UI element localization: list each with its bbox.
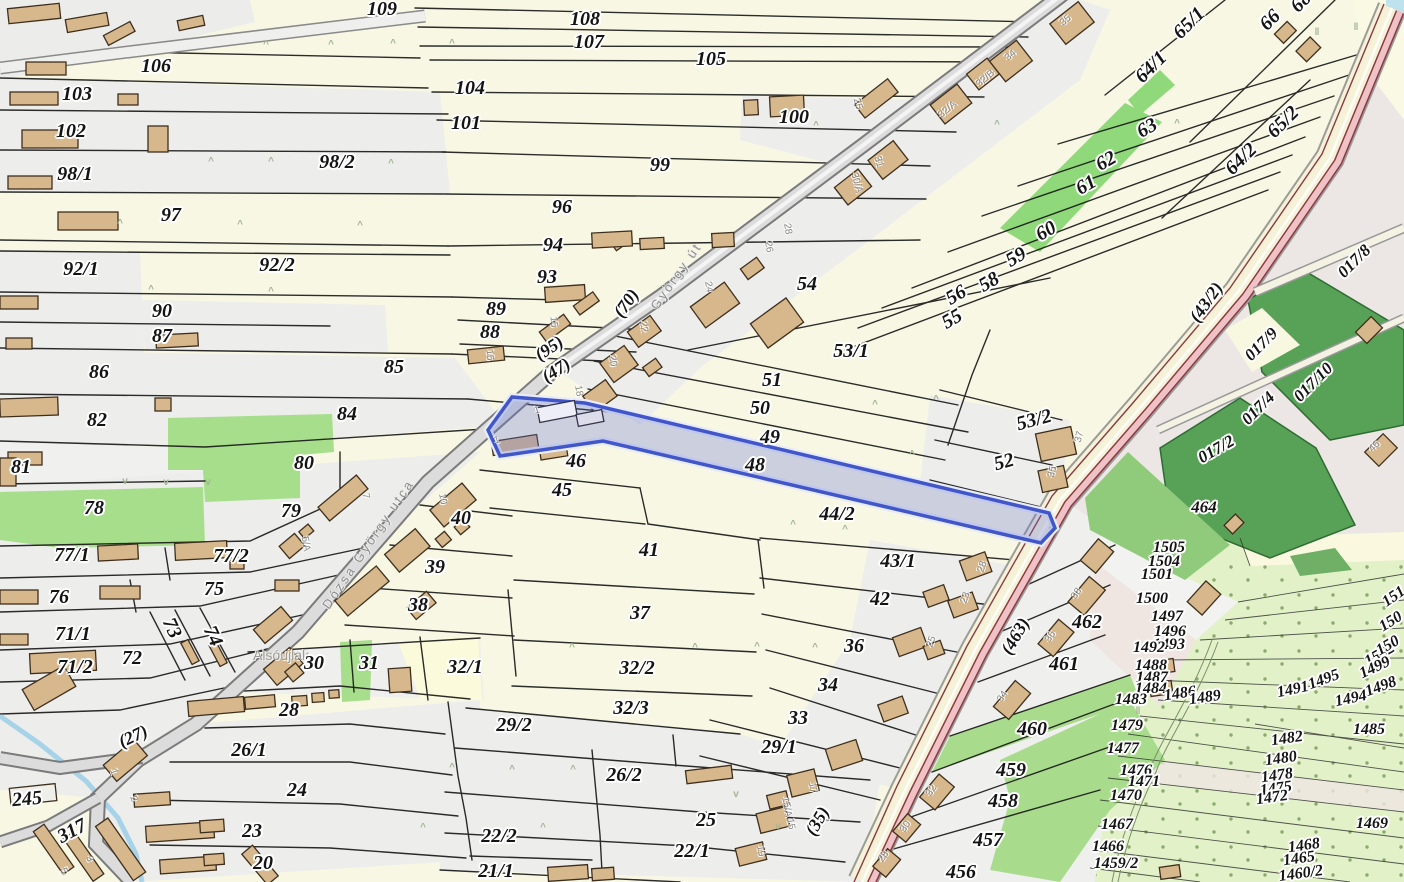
parcel-number-label: 1466 — [1092, 839, 1124, 855]
parcel-number-label: 80 — [294, 453, 314, 473]
parcel-number-label: 72 — [122, 648, 142, 668]
vegetation-symbol: ^ — [692, 643, 698, 653]
house-number-label: 19 — [754, 845, 766, 858]
parcel-number-label: 1501 — [1141, 567, 1173, 583]
parcel-number-label: 461 — [1049, 654, 1079, 674]
parcel-number-label: 103 — [62, 84, 92, 104]
parcel-number-label: 101 — [451, 113, 481, 133]
parcel-number-label: 46 — [566, 451, 586, 471]
vegetation-symbol: v — [163, 478, 169, 488]
map-geometry — [0, 0, 1404, 882]
house-number-label: 28 — [781, 223, 793, 236]
parcel-number-label: 106 — [141, 56, 171, 76]
parcel-number-label: 92/2 — [259, 255, 295, 275]
parcel-number-label: 51 — [762, 370, 782, 390]
parcel-number-label: 26/1 — [231, 740, 267, 760]
parcel-number-label: 31 — [359, 653, 379, 673]
parcel-number-label: 459 — [996, 760, 1026, 780]
parcel-number-label: 93 — [537, 267, 557, 287]
vegetation-symbol: ^ — [933, 395, 939, 405]
parcel-number-label: 245 — [11, 788, 43, 811]
vegetation-symbol: ^ — [420, 823, 426, 833]
parcel-number-label: 77/2 — [213, 546, 249, 566]
house-number-label: 15 — [784, 818, 796, 831]
vegetation-symbol: ^ — [390, 39, 396, 49]
parcel-number-label: 1467 — [1101, 817, 1133, 833]
parcel-number-label: 458 — [988, 791, 1018, 811]
parcel-number-label: 86 — [89, 362, 109, 382]
parcel-number-label: 1479 — [1111, 718, 1143, 734]
parcel-number-label: 464 — [1191, 499, 1217, 516]
parcel-number-label: 20 — [253, 853, 273, 873]
vegetation-symbol: v — [775, 822, 781, 832]
parcel-number-label: 460 — [1017, 719, 1047, 739]
parcel-number-label: 1492 — [1133, 640, 1165, 656]
parcel-number-label: 71/1 — [55, 624, 91, 644]
house-number-label: 20 — [606, 355, 618, 368]
parcel-number-label: 24 — [287, 780, 307, 800]
parcel-number-label: 40 — [451, 508, 471, 528]
vegetation-symbol: ^ — [909, 450, 915, 460]
parcel-number-label: 105 — [696, 49, 726, 69]
parcel-number-label: 50 — [750, 398, 770, 418]
vegetation-symbol: ^ — [263, 40, 269, 50]
parcel-number-label: 109 — [367, 0, 397, 19]
vegetation-symbol: v — [122, 477, 128, 487]
parcel-number-label: 32/2 — [619, 658, 655, 678]
parcel-number-label: 37 — [630, 603, 650, 623]
vegetation-symbol: ^ — [754, 642, 760, 652]
parcel-number-label: 90 — [152, 301, 172, 321]
vegetation-symbol: ^ — [237, 220, 243, 230]
parcel-number-label: 1469 — [1356, 816, 1388, 832]
vegetation-symbol: ^ — [570, 765, 576, 775]
parcel-number-label: 1483 — [1115, 692, 1147, 708]
parcel-number-label: 457 — [973, 830, 1003, 850]
vegetation-symbol: ^ — [509, 765, 515, 775]
parcel-number-label: 25 — [696, 810, 716, 830]
vegetation-symbol: ^ — [148, 285, 154, 295]
parcel-number-label: 32/3 — [613, 698, 649, 718]
vegetation-symbol: ^ — [994, 120, 1000, 130]
parcel-number-label: 102 — [56, 121, 86, 141]
parcel-number-label: 462 — [1072, 612, 1102, 632]
parcel-number-label: 1470 — [1110, 788, 1142, 804]
parcel-number-label: 84 — [337, 404, 357, 424]
parcel-number-label: 82 — [87, 410, 107, 430]
cadastral-map-canvas[interactable]: ^^^^^^^^^^^^^^^^^^^^^^^^^^^^^^vvvvv‖‖‖16… — [0, 0, 1404, 882]
parcel-number-label: 54 — [797, 274, 817, 294]
parcel-number-label: 29/1 — [761, 737, 797, 757]
parcel-number-label: 85 — [384, 357, 404, 377]
parcel-number-label: 81 — [11, 457, 31, 477]
house-number-label: 7 — [360, 492, 371, 499]
vegetation-symbol: ^ — [208, 157, 214, 167]
parcel-number-label: 1500 — [1136, 591, 1168, 607]
parcel-number-label: 76 — [49, 587, 69, 607]
house-number-label: 18 — [572, 385, 584, 398]
parcel-number-label: 38 — [408, 595, 428, 615]
vegetation-symbol: ^ — [117, 219, 123, 229]
parcel-number-label: 107 — [574, 32, 604, 52]
parcel-number-label: 94 — [543, 235, 563, 255]
vegetation-symbol: ^ — [842, 525, 848, 535]
vegetation-symbol: ^ — [540, 823, 546, 833]
vegetation-symbol: ‖ — [1136, 707, 1141, 717]
house-number-label: 5/A — [299, 536, 311, 553]
vegetation-symbol: ^ — [813, 121, 819, 131]
vegetation-symbol: ^ — [569, 643, 575, 653]
vegetation-symbol: ^ — [1174, 119, 1180, 129]
parcel-number-label: 1477 — [1107, 741, 1139, 757]
parcel-number-label: 1459/2 — [1094, 856, 1138, 872]
vegetation-symbol: ^ — [328, 40, 334, 50]
parcel-number-label: 456 — [946, 862, 976, 882]
parcel-number-label: 34 — [818, 675, 838, 695]
house-number-label: 16 — [484, 349, 495, 361]
parcel-number-label: 41 — [639, 540, 659, 560]
place-name-label: Alsóújlak — [253, 648, 309, 662]
parcel-number-label: 39 — [425, 557, 445, 577]
vegetation-symbol: ‖ — [1354, 23, 1359, 33]
parcel-number-label: 96 — [552, 197, 572, 217]
vegetation-symbol: ^ — [812, 643, 818, 653]
parcel-number-label: 32/1 — [447, 657, 483, 677]
parcel-number-label: 45 — [552, 480, 572, 500]
parcel-number-label: 42 — [870, 589, 890, 609]
parcel-number-label: 1485 — [1353, 722, 1385, 738]
parcel-number-label: 100 — [779, 107, 809, 127]
vegetation-symbol: v — [205, 478, 211, 488]
parcel-number-label: 28 — [279, 700, 299, 720]
parcel-number-label: 26/2 — [606, 765, 642, 785]
house-number-label: 10 — [436, 493, 448, 506]
parcel-number-label: 99 — [650, 155, 670, 175]
parcel-number-label: 89 — [486, 299, 506, 319]
parcel-number-label: 98/2 — [319, 152, 355, 172]
house-number-label: 15/A — [779, 796, 792, 818]
parcel-number-label: 87 — [152, 326, 172, 346]
parcel-number-label: 77/1 — [54, 545, 90, 565]
parcel-number-label: 48 — [745, 455, 765, 475]
vegetation-symbol: ^ — [790, 520, 796, 530]
parcel-number-label: 78 — [84, 498, 104, 518]
parcel-number-label: 97 — [161, 205, 181, 225]
parcel-number-label: 104 — [455, 78, 485, 98]
vegetation-symbol: v — [733, 790, 739, 800]
vegetation-symbol: ^ — [449, 763, 455, 773]
house-number-label: 22 — [637, 321, 649, 334]
parcel-number-label: 92/1 — [63, 259, 99, 279]
house-number-label: 15 — [548, 316, 559, 328]
parcel-number-label: 23 — [242, 821, 262, 841]
vegetation-symbol: ^ — [388, 159, 394, 169]
parcel-number-label: 44/2 — [819, 504, 855, 524]
vegetation-symbol: ^ — [268, 157, 274, 167]
parcel-number-label: 36 — [844, 636, 864, 656]
parcel-number-label: 22/1 — [674, 841, 710, 861]
parcel-number-label: 29/2 — [496, 715, 532, 735]
parcel-number-label: 98/1 — [57, 164, 93, 184]
vegetation-symbol: ‖ — [1315, 28, 1320, 38]
parcel-number-label: 33 — [788, 708, 808, 728]
house-number-label: 24 — [702, 281, 714, 294]
vegetation-symbol: ^ — [268, 287, 274, 297]
parcel-number-label: 75 — [204, 579, 224, 599]
parcel-number-label: 71/2 — [57, 657, 93, 677]
parcel-number-label: 43/1 — [880, 551, 916, 571]
house-number-label: 26 — [762, 241, 774, 254]
vegetation-symbol: ^ — [357, 221, 363, 231]
parcel-number-label: 30 — [304, 653, 324, 673]
parcel-number-label: 49 — [760, 427, 780, 447]
vegetation-symbol: ^ — [449, 39, 455, 49]
parcel-number-label: 22/2 — [481, 826, 517, 846]
house-number-label: 17 — [806, 782, 818, 795]
parcel-number-label: 53/1 — [833, 341, 869, 361]
parcel-number-label: 21/1 — [478, 861, 514, 881]
vegetation-symbol: ^ — [872, 400, 878, 410]
parcel-number-label: 79 — [281, 501, 301, 521]
parcel-number-label: 108 — [570, 9, 600, 29]
parcel-number-label: 88 — [480, 322, 500, 342]
